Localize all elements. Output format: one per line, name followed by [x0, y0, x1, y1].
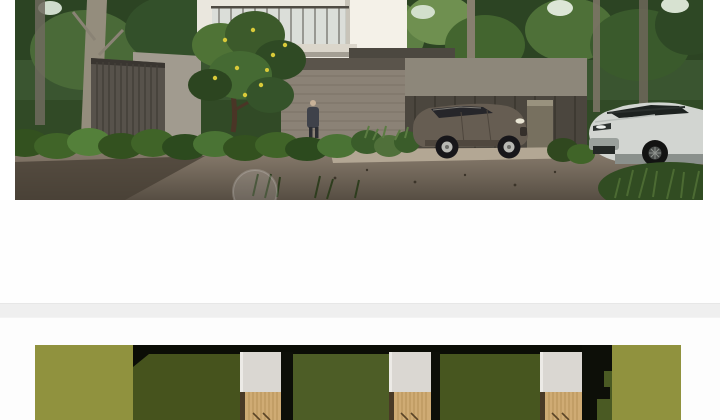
hero-scene: [15, 0, 703, 200]
listing-flyer: Luas Tanah : 275 meter Luas Bangunan : 3…: [0, 0, 720, 420]
lawn-right: [612, 345, 681, 420]
lawn-left: [35, 345, 133, 420]
section-divider: [0, 303, 720, 318]
hero-photo[interactable]: [15, 0, 703, 200]
siteplan-photo[interactable]: [35, 343, 681, 420]
siteplan-scene: [35, 343, 681, 420]
property-info-section: Luas Tanah : 275 meter Luas Bangunan : 3…: [0, 200, 720, 303]
siteplan-section: [0, 318, 720, 420]
unit-1: [240, 352, 293, 420]
unit-2: [389, 352, 440, 420]
